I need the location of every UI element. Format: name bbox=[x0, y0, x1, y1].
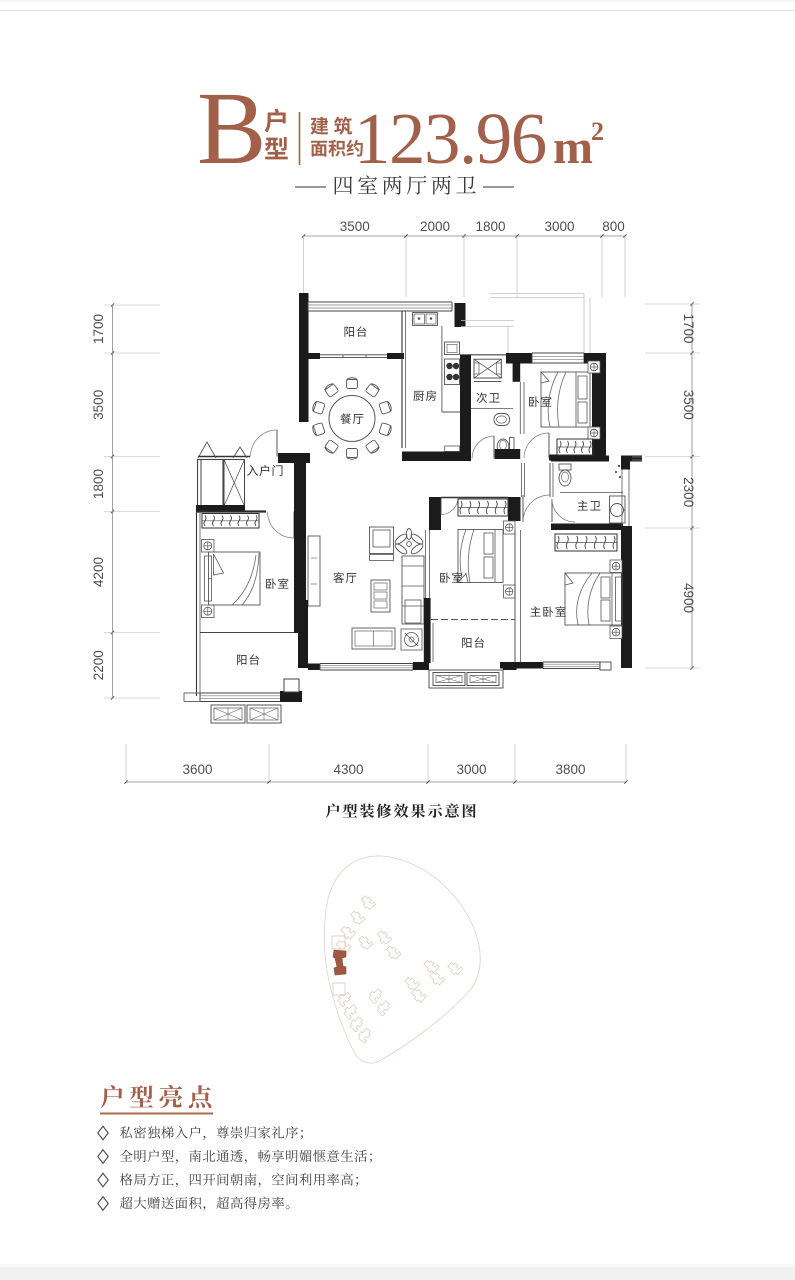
svg-text:2200: 2200 bbox=[91, 650, 106, 680]
svg-text:1800: 1800 bbox=[475, 219, 505, 234]
svg-text:3000: 3000 bbox=[456, 762, 486, 777]
svg-text:800: 800 bbox=[602, 219, 625, 234]
svg-text:3600: 3600 bbox=[182, 762, 212, 777]
svg-text:4900: 4900 bbox=[681, 583, 696, 613]
svg-text:3800: 3800 bbox=[555, 762, 585, 777]
svg-text:3500: 3500 bbox=[681, 390, 696, 420]
svg-text:3500: 3500 bbox=[91, 390, 106, 420]
svg-text:m: m bbox=[553, 121, 593, 174]
svg-text:1800: 1800 bbox=[91, 469, 106, 499]
svg-text:4300: 4300 bbox=[333, 762, 363, 777]
svg-text:3500: 3500 bbox=[340, 219, 370, 234]
svg-text:1700: 1700 bbox=[681, 313, 696, 343]
svg-text:3000: 3000 bbox=[544, 219, 574, 234]
svg-text:2300: 2300 bbox=[681, 477, 696, 507]
svg-text:1700: 1700 bbox=[91, 314, 106, 344]
svg-text:2: 2 bbox=[591, 117, 604, 146]
svg-text:4200: 4200 bbox=[91, 557, 106, 587]
svg-text:123.96: 123.96 bbox=[354, 98, 546, 179]
svg-text:2000: 2000 bbox=[420, 219, 450, 234]
svg-text:B: B bbox=[197, 71, 266, 186]
